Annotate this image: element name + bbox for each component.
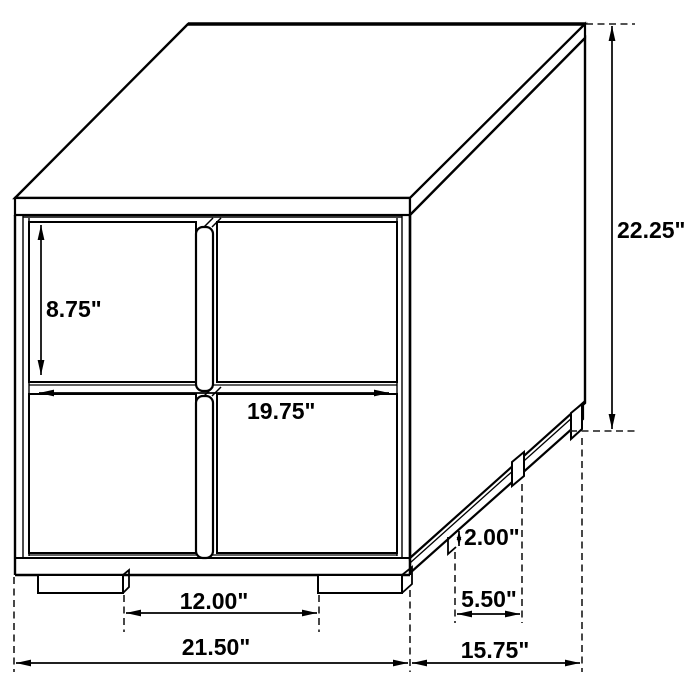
dim-overall-height: 22.25"	[570, 24, 685, 431]
dim-front-leg-spacing-label: 12.00"	[180, 588, 248, 614]
drawer-panel-bottom-left	[29, 394, 196, 553]
dim-leg-height-label: 2.00"	[464, 524, 520, 550]
front-left-leg	[38, 575, 123, 593]
drawer-handle-top	[196, 227, 213, 391]
drawer-handle-bottom	[196, 396, 213, 558]
dim-leg-height: 2.00"	[459, 524, 520, 550]
dimension-diagram: 8.75" 19.75" 22.25" 2.00" 5.50" 12.00" 2…	[0, 0, 700, 700]
front-right-leg	[318, 575, 402, 593]
top-panel-front-edge	[15, 198, 410, 215]
dim-overall-height-label: 22.25"	[617, 217, 685, 243]
dim-drawer-width-label: 19.75"	[247, 398, 315, 424]
dim-front-leg-spacing: 12.00"	[124, 588, 319, 632]
dim-overall-depth-label: 15.75"	[461, 637, 529, 663]
dim-drawer-height-label: 8.75"	[46, 296, 102, 322]
drawer-panel-top-right	[217, 222, 397, 382]
dim-side-leg-spacing-label: 5.50"	[461, 586, 517, 612]
dim-overall-width-label: 21.50"	[182, 634, 250, 660]
